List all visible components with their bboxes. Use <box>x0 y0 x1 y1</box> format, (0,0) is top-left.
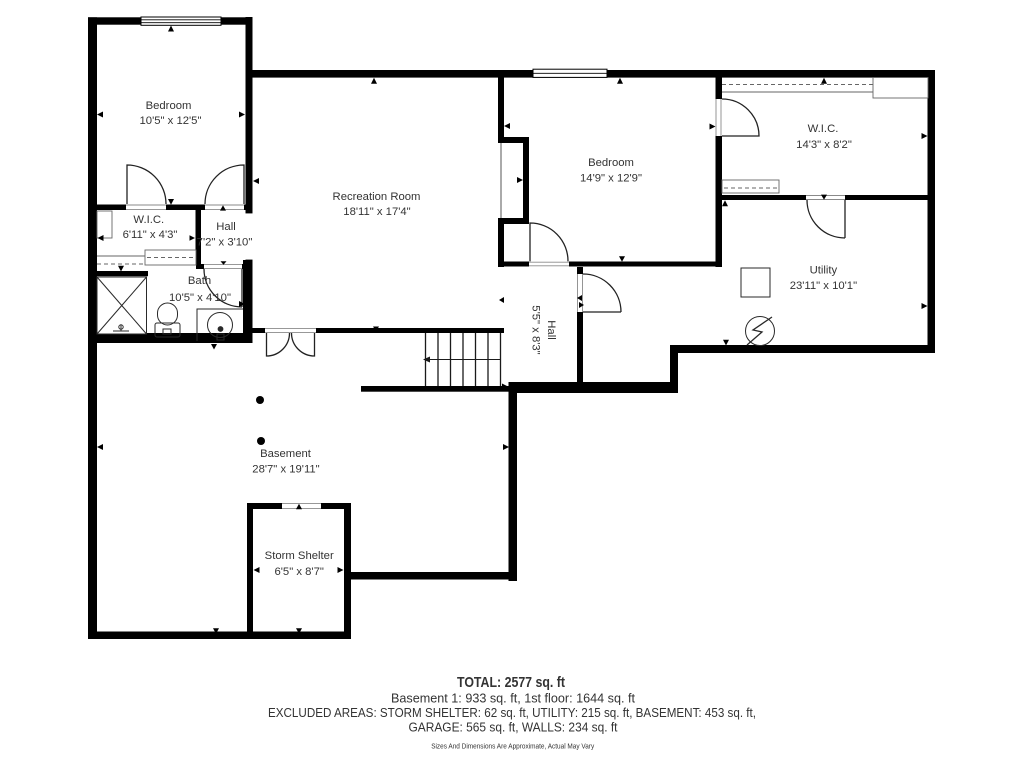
svg-text:6'11" x 4'3": 6'11" x 4'3" <box>123 229 178 241</box>
svg-text:Basement 1: 933 sq. ft, 1st fl: Basement 1: 933 sq. ft, 1st floor: 1644 … <box>391 692 636 706</box>
svg-text:Sizes And Dimensions Are Appro: Sizes And Dimensions Are Approximate, Ac… <box>431 744 594 751</box>
svg-text:6'5" x 8'7": 6'5" x 8'7" <box>274 566 323 578</box>
svg-text:Bedroom: Bedroom <box>146 100 192 112</box>
svg-text:GARAGE: 565 sq. ft, WALLS: 234: GARAGE: 565 sq. ft, WALLS: 234 sq. ft <box>409 721 618 735</box>
svg-text:Storm Shelter: Storm Shelter <box>265 550 334 562</box>
svg-text:Hall: Hall <box>545 320 557 339</box>
svg-text:10'5" x 12'5": 10'5" x 12'5" <box>140 115 202 127</box>
svg-text:W.I.C.: W.I.C. <box>133 214 164 226</box>
svg-text:Recreation Room: Recreation Room <box>333 191 421 203</box>
svg-text:5'5" x 8'3": 5'5" x 8'3" <box>530 305 542 354</box>
svg-text:Hall: Hall <box>216 221 235 233</box>
svg-text:18'11" x 17'4": 18'11" x 17'4" <box>343 206 410 218</box>
svg-text:28'7" x 19'11": 28'7" x 19'11" <box>252 464 319 476</box>
svg-text:EXCLUDED AREAS: STORM SHELTER:: EXCLUDED AREAS: STORM SHELTER: 62 sq. ft… <box>268 706 756 720</box>
svg-text:Basement: Basement <box>260 448 312 460</box>
svg-text:14'3" x 8'2": 14'3" x 8'2" <box>796 139 852 151</box>
svg-text:Utility: Utility <box>810 265 838 277</box>
svg-text:Bedroom: Bedroom <box>588 157 634 169</box>
svg-text:7'2" x 3'10": 7'2" x 3'10" <box>197 237 253 249</box>
svg-text:14'9" x 12'9": 14'9" x 12'9" <box>580 173 642 185</box>
svg-text:Bath: Bath <box>188 275 211 287</box>
svg-text:TOTAL: 2577 sq. ft: TOTAL: 2577 sq. ft <box>457 674 565 691</box>
svg-text:10'5" x 4'10": 10'5" x 4'10" <box>169 292 231 304</box>
svg-text:W.I.C.: W.I.C. <box>808 123 839 135</box>
svg-text:23'11" x 10'1": 23'11" x 10'1" <box>790 280 857 292</box>
